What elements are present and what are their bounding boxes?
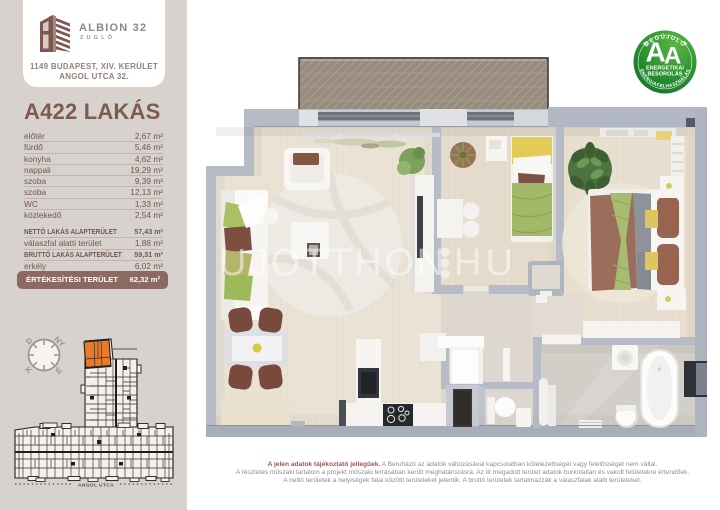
svg-text:BESOROLÁS: BESOROLÁS [647, 71, 682, 78]
svg-text:UJOTTHON: UJOTTHON [219, 242, 447, 284]
svg-text:HU: HU [454, 242, 517, 284]
